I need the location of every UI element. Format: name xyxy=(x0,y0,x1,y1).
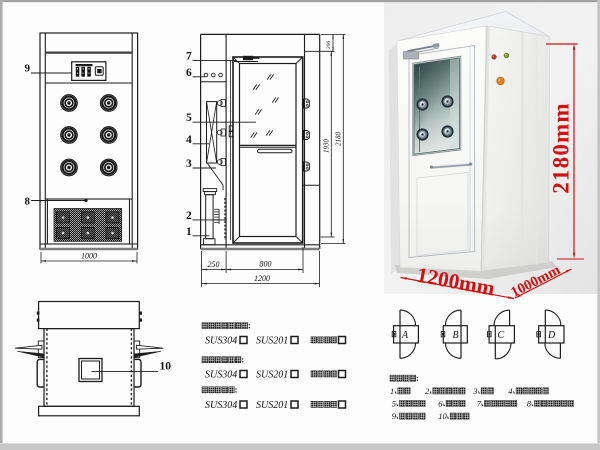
svg-text:250: 250 xyxy=(208,260,220,269)
svg-text:3: 3 xyxy=(186,158,192,170)
svg-text:1: 1 xyxy=(186,226,192,238)
svg-text:SUS304: SUS304 xyxy=(205,370,237,381)
svg-text:8: 8 xyxy=(25,196,31,208)
svg-text:2180: 2180 xyxy=(334,132,342,147)
svg-text:SUS304: SUS304 xyxy=(205,400,237,411)
svg-text:SUS201: SUS201 xyxy=(256,400,288,411)
svg-text:5: 5 xyxy=(392,398,396,408)
svg-text:SUS304: SUS304 xyxy=(205,336,237,347)
svg-text:200: 200 xyxy=(326,41,332,50)
svg-text:4: 4 xyxy=(186,134,192,146)
svg-text:10: 10 xyxy=(160,361,172,373)
svg-text:6: 6 xyxy=(186,67,192,79)
svg-text:800: 800 xyxy=(260,260,272,269)
svg-text:1: 1 xyxy=(390,386,394,396)
svg-text:1200: 1200 xyxy=(254,274,270,283)
svg-text:1000: 1000 xyxy=(81,252,97,261)
svg-text:C: C xyxy=(498,330,505,341)
svg-text:2: 2 xyxy=(186,210,192,222)
svg-text:B: B xyxy=(453,330,459,341)
svg-text:3: 3 xyxy=(472,386,477,396)
svg-text:1930: 1930 xyxy=(322,139,330,154)
svg-text:SUS201: SUS201 xyxy=(256,370,288,381)
svg-text:10: 10 xyxy=(438,411,447,421)
svg-text:SUS201: SUS201 xyxy=(256,336,288,347)
svg-text:D: D xyxy=(547,330,556,341)
svg-text:2180mm: 2180mm xyxy=(548,102,573,194)
svg-text:9: 9 xyxy=(25,63,31,75)
svg-text:7: 7 xyxy=(186,50,192,62)
svg-text:A: A xyxy=(401,330,409,341)
svg-text:5: 5 xyxy=(186,112,192,124)
